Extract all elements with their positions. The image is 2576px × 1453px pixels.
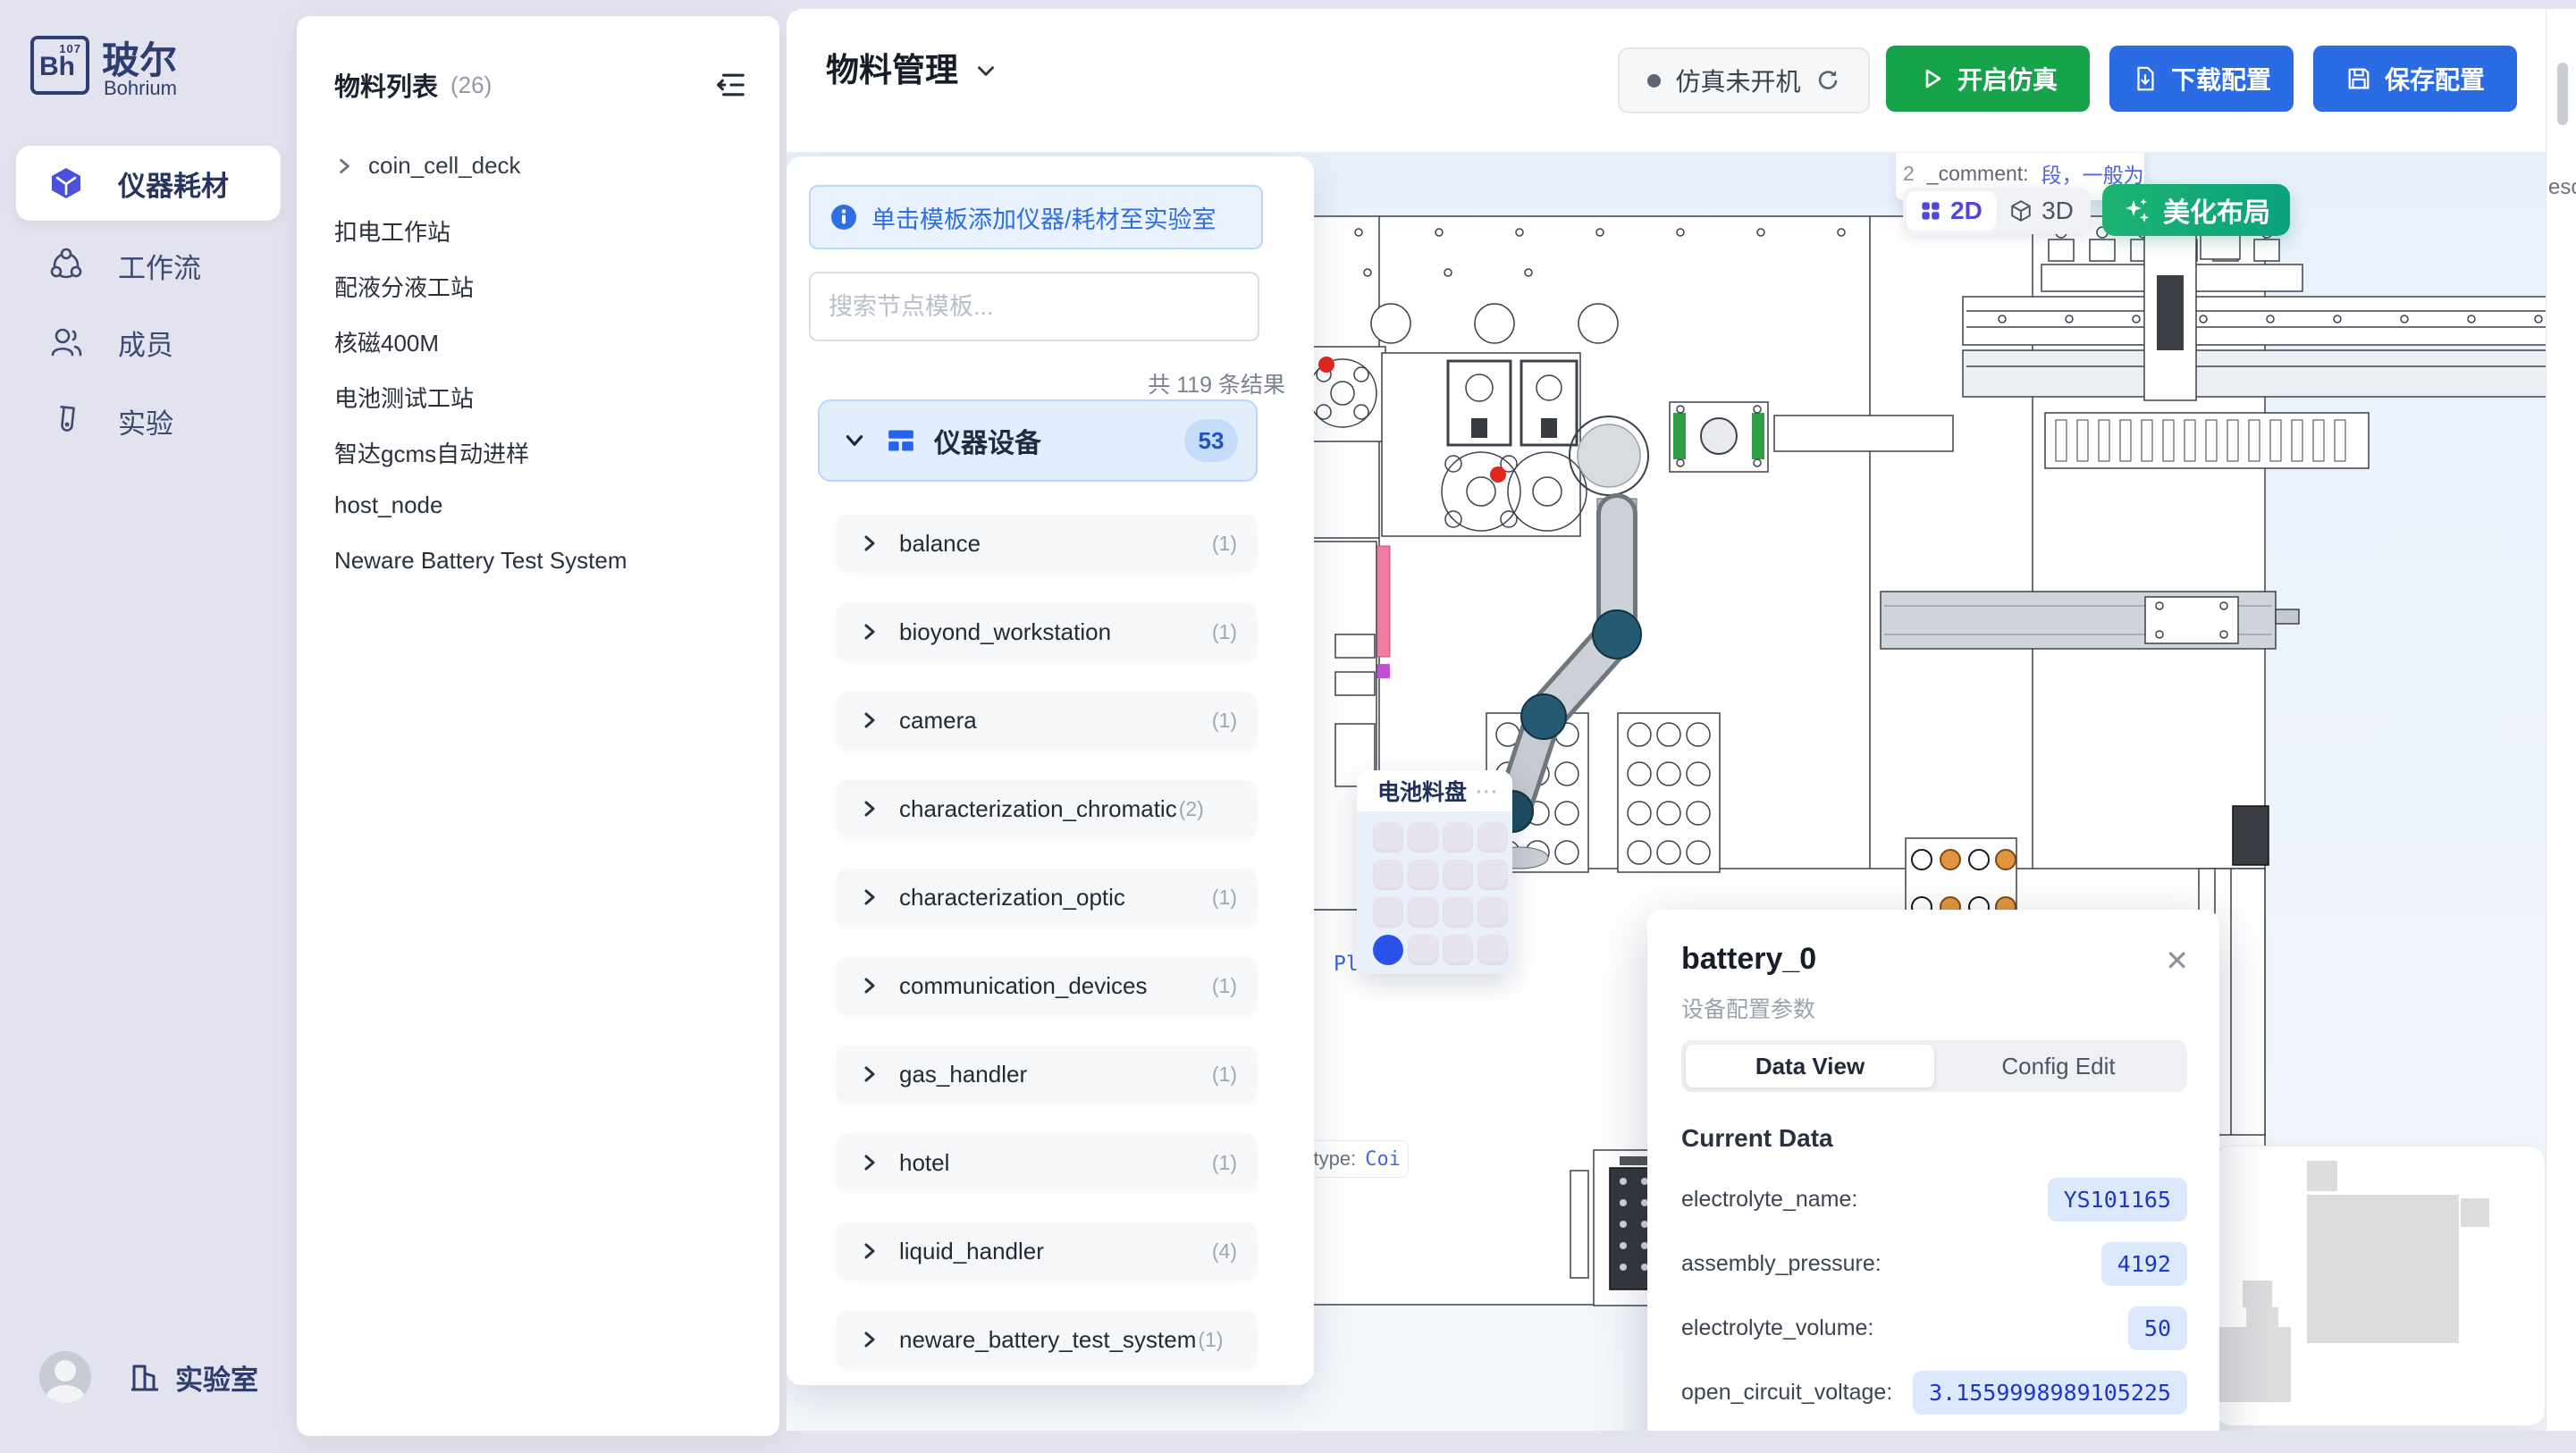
members-icon bbox=[48, 324, 84, 360]
avatar[interactable] bbox=[39, 1351, 91, 1403]
tab-config-edit[interactable]: Config Edit bbox=[1934, 1045, 2183, 1088]
current-data-heading: Current Data bbox=[1681, 1124, 1833, 1153]
sidebar-item-members[interactable]: 成员 bbox=[16, 305, 281, 380]
field-electrolyte-volume: electrolyte_volume: 50 bbox=[1681, 1296, 2187, 1360]
chevron-right-icon bbox=[860, 1065, 878, 1083]
field-open-circuit-voltage: open_circuit_voltage: 3.1559998989105225 bbox=[1681, 1360, 2187, 1424]
tray-cell[interactable] bbox=[1443, 860, 1473, 890]
material-item[interactable]: 核磁400M bbox=[334, 325, 439, 358]
page-title[interactable]: 物料管理 bbox=[826, 43, 998, 91]
battery-tray-card[interactable]: 电池料盘 ⋯ bbox=[1357, 770, 1512, 974]
app-root: Bh 107 玻尔 Bohrium 仪器耗材 工作流 bbox=[0, 0, 2576, 1453]
status-dot-icon bbox=[1647, 74, 1661, 88]
template-item-camera[interactable]: camera (1) bbox=[837, 692, 1257, 749]
save-icon bbox=[2345, 65, 2372, 92]
chevron-right-icon bbox=[860, 800, 878, 818]
field-value: 4192 bbox=[2101, 1242, 2187, 1286]
material-item[interactable]: 配液分液工站 bbox=[334, 270, 474, 303]
play-icon bbox=[1918, 65, 1945, 92]
main-area: 物料管理 仿真未开机 开启仿真 bbox=[787, 9, 2576, 1431]
tray-cell[interactable] bbox=[1443, 897, 1473, 928]
search-input[interactable] bbox=[809, 272, 1259, 341]
chevron-down-icon bbox=[974, 59, 998, 82]
tray-cell[interactable] bbox=[1477, 822, 1508, 852]
lab-building-icon bbox=[127, 1359, 163, 1395]
template-item-liquid-handler[interactable]: liquid_handler (4) bbox=[837, 1222, 1257, 1280]
workflow-icon bbox=[48, 248, 84, 283]
cube-3d-icon bbox=[2009, 199, 2033, 223]
sidebar-item-label: 仪器耗材 bbox=[118, 164, 229, 204]
template-item-hotel[interactable]: hotel (1) bbox=[837, 1134, 1257, 1191]
template-item-communication-devices[interactable]: communication_devices (1) bbox=[837, 957, 1257, 1014]
field-assembly-pressure: assembly_pressure: 4192 bbox=[1681, 1231, 2187, 1296]
material-item[interactable]: 电池测试工站 bbox=[334, 381, 474, 414]
save-config-button[interactable]: 保存配置 bbox=[2313, 46, 2517, 112]
view-mode-toggle: 2D 3D bbox=[1903, 188, 2091, 234]
result-count: 共 119 条结果 bbox=[1148, 367, 1285, 399]
field-value: 50 bbox=[2128, 1306, 2187, 1350]
material-item[interactable]: 智达gcms自动进样 bbox=[334, 436, 529, 469]
tray-cell[interactable] bbox=[1408, 897, 1438, 928]
tray-cell[interactable] bbox=[1373, 822, 1403, 852]
tray-cell[interactable] bbox=[1477, 897, 1508, 928]
chevron-right-icon bbox=[334, 156, 354, 176]
tab-data-view[interactable]: Data View bbox=[1686, 1045, 1934, 1088]
category-instruments[interactable]: 仪器设备 53 bbox=[818, 399, 1258, 482]
chevron-right-icon bbox=[860, 534, 878, 552]
category-label: 仪器设备 bbox=[934, 421, 1041, 460]
template-item-balance[interactable]: balance (1) bbox=[837, 515, 1257, 572]
sidebar-item-label: 工作流 bbox=[118, 246, 201, 286]
main-header: 物料管理 仿真未开机 开启仿真 bbox=[787, 9, 2576, 153]
grid-icon bbox=[888, 428, 914, 453]
material-list-panel: 物料列表 (26) coin_cell_deck 扣电工作站 配液分液工站 核磁… bbox=[297, 16, 779, 1436]
battery-tray-title: 电池料盘 bbox=[1369, 775, 1475, 807]
template-item-bioyond-workstation[interactable]: bioyond_workstation (1) bbox=[837, 603, 1257, 660]
more-menu-icon[interactable]: ⋯ bbox=[1475, 777, 1500, 805]
minimap[interactable] bbox=[2215, 1146, 2546, 1426]
field-value: YS101165 bbox=[2048, 1178, 2187, 1222]
sidebar-item-workflow[interactable]: 工作流 bbox=[16, 228, 281, 303]
field-electrolyte-name: electrolyte_name: YS101165 bbox=[1681, 1167, 2187, 1231]
template-hint-banner: 单击模板添加仪器/耗材至实验室 bbox=[809, 185, 1263, 249]
logo-symbol: Bh bbox=[39, 52, 75, 82]
sidebar-item-instruments[interactable]: 仪器耗材 bbox=[16, 146, 281, 221]
chevron-right-icon bbox=[860, 977, 878, 995]
chevron-down-icon bbox=[843, 429, 866, 452]
sidebar-item-experiments[interactable]: 实验 bbox=[16, 383, 281, 458]
chevron-right-icon bbox=[860, 1154, 878, 1172]
test-tube-icon bbox=[48, 403, 84, 439]
sidebar: Bh 107 玻尔 Bohrium 仪器耗材 工作流 bbox=[0, 0, 295, 1453]
tray-cell[interactable] bbox=[1373, 860, 1403, 890]
bohrium-logo[interactable]: Bh 107 bbox=[30, 36, 89, 95]
material-list-title: 物料列表 bbox=[334, 66, 438, 104]
battery-config-popup: battery_0 设备配置参数 ✕ Data View Config Edit… bbox=[1647, 910, 2219, 1431]
material-item[interactable]: Neware Battery Test System bbox=[334, 547, 627, 575]
flyout-clipped-text: esou bbox=[2548, 175, 2576, 200]
chevron-right-icon bbox=[860, 888, 878, 906]
sidebar-footer: 实验室 bbox=[0, 1337, 295, 1417]
template-panel: 单击模板添加仪器/耗材至实验室 共 119 条结果 仪器设备 53 bbox=[787, 156, 1314, 1385]
tray-cell[interactable] bbox=[1477, 935, 1508, 965]
logo-number: 107 bbox=[59, 42, 81, 55]
field-value: 3.1559998989105225 bbox=[1913, 1371, 2187, 1415]
field-data-electrolyte-code: data_electrolyte_code: LG000014 bbox=[1681, 1424, 2187, 1431]
popup-tabs: Data View Config Edit bbox=[1681, 1040, 2187, 1092]
view-3d-button[interactable]: 3D bbox=[1996, 197, 2087, 225]
lab-switcher[interactable]: 实验室 bbox=[175, 1357, 258, 1398]
tray-cell[interactable] bbox=[1443, 935, 1473, 965]
scrollbar-thumb[interactable] bbox=[2557, 63, 2568, 125]
sidebar-item-label: 成员 bbox=[118, 323, 173, 363]
material-item[interactable]: 扣电工作站 bbox=[334, 214, 450, 248]
chevron-right-icon bbox=[860, 623, 878, 641]
refresh-icon[interactable] bbox=[1815, 68, 1840, 93]
download-config-button[interactable]: 下载配置 bbox=[2109, 46, 2294, 112]
material-tree-item[interactable]: coin_cell_deck bbox=[334, 152, 521, 180]
view-2d-button[interactable]: 2D bbox=[1907, 191, 1996, 231]
lab-canvas[interactable]: 单击模板添加仪器/耗材至实验室 共 119 条结果 仪器设备 53 bbox=[787, 152, 2576, 1431]
simulation-status: 仿真未开机 bbox=[1618, 47, 1870, 113]
grid-2d-icon bbox=[1920, 200, 1941, 222]
sparkles-icon bbox=[2122, 195, 2152, 225]
template-item-characterization-optic[interactable]: characterization_optic (1) bbox=[837, 869, 1257, 926]
material-item[interactable]: host_node bbox=[334, 491, 442, 519]
tray-cell[interactable] bbox=[1408, 822, 1438, 852]
tray-cell[interactable] bbox=[1373, 897, 1403, 928]
chevron-right-icon bbox=[860, 1242, 878, 1260]
tray-cell[interactable] bbox=[1408, 935, 1438, 965]
info-icon bbox=[830, 204, 857, 231]
download-file-icon bbox=[2132, 65, 2159, 92]
popup-title: battery_0 bbox=[1681, 942, 1816, 977]
template-item-neware-battery-test-system[interactable]: neware_battery_test_system (1) bbox=[837, 1311, 1257, 1368]
tray-cell[interactable] bbox=[1477, 860, 1508, 890]
chevron-right-icon bbox=[860, 1331, 878, 1348]
chevron-right-icon bbox=[860, 711, 878, 729]
sidebar-item-label: 实验 bbox=[118, 401, 173, 441]
beautify-layout-button[interactable]: 美化布局 bbox=[2102, 184, 2290, 236]
template-item-characterization-chromatic[interactable]: characterization_chromatic (2) bbox=[837, 780, 1257, 837]
start-simulation-button[interactable]: 开启仿真 bbox=[1886, 46, 2090, 112]
cube-icon bbox=[48, 165, 84, 201]
tray-cell-selected-battery-0[interactable] bbox=[1373, 935, 1403, 965]
tray-cell[interactable] bbox=[1408, 860, 1438, 890]
collapse-panel-icon[interactable] bbox=[715, 70, 747, 100]
logo-subtitle: Bohrium bbox=[104, 77, 177, 100]
right-flyout-panel: esou bbox=[2546, 9, 2576, 1431]
category-badge: 53 bbox=[1184, 419, 1238, 462]
battery-tray-grid bbox=[1357, 811, 1512, 974]
material-list-count: (26) bbox=[450, 71, 492, 99]
template-item-gas-handler[interactable]: gas_handler (1) bbox=[837, 1046, 1257, 1103]
popup-subtitle: 设备配置参数 bbox=[1681, 992, 1815, 1024]
tray-cell[interactable] bbox=[1443, 822, 1473, 852]
close-icon[interactable]: ✕ bbox=[2165, 944, 2189, 978]
